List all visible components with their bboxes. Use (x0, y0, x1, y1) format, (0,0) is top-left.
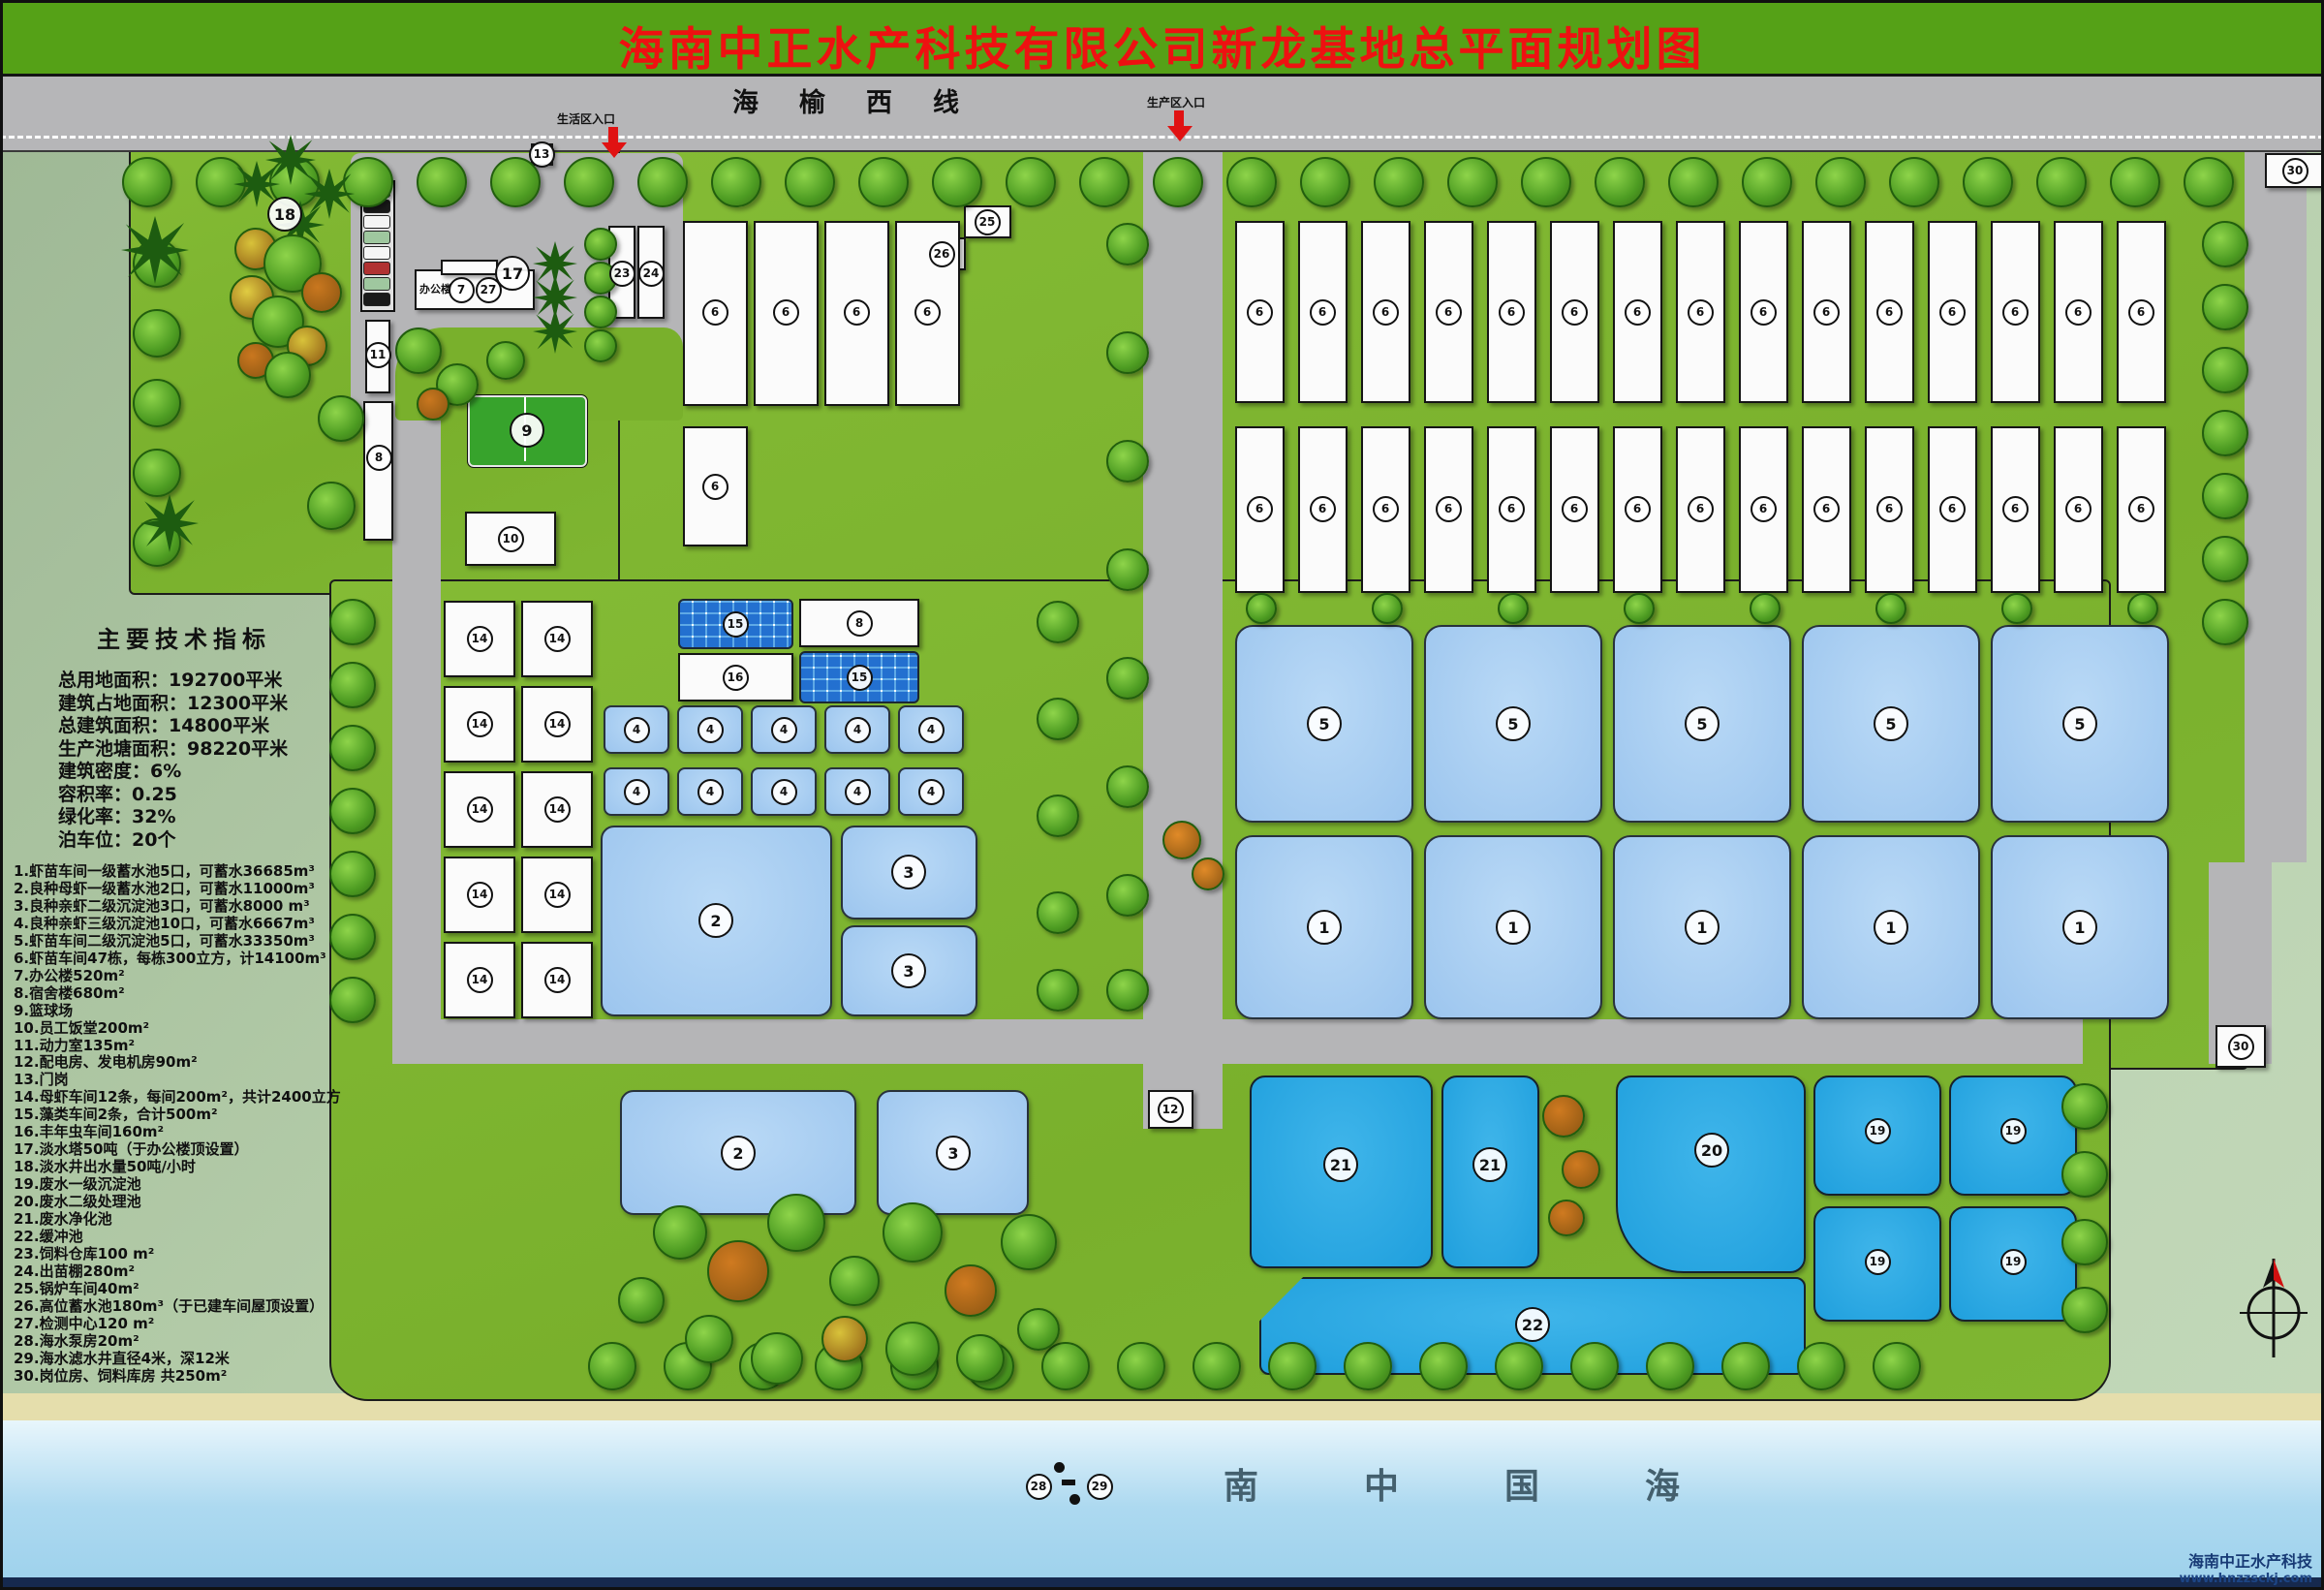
tree-icon (2202, 599, 2248, 645)
tree-icon (1193, 1342, 1241, 1390)
tree-icon (1079, 157, 1130, 207)
tree-icon (343, 157, 393, 207)
legend-item: 16.丰年虫车间160m² (14, 1124, 479, 1141)
tree-icon (1521, 157, 1571, 207)
map-marker-14: 14 (467, 711, 493, 737)
map-marker-15: 15 (723, 611, 749, 638)
tree-icon (264, 352, 311, 398)
tree-icon (2110, 157, 2160, 207)
sea-name-char: 海 (1645, 1458, 1680, 1509)
tree-icon (584, 296, 617, 328)
legend-item: 30.岗位房、饲料库房 共250m² (14, 1368, 479, 1386)
map-marker-6: 6 (914, 299, 941, 326)
legend-item: 8.宿舍楼680m² (14, 985, 479, 1003)
life-entrance-arrowhead (602, 142, 627, 158)
map-marker-13: 13 (529, 141, 555, 168)
empty-stall (363, 231, 390, 244)
tree-icon (2061, 1287, 2108, 1333)
watermark-company: 海南中正水产科技 (2180, 1548, 2312, 1572)
map-marker-25: 25 (975, 209, 1001, 235)
tree-icon (2127, 593, 2158, 624)
tree-icon (2036, 157, 2087, 207)
legend-item: 14.母虾车间12条，每间200m²，共计2400立方 (14, 1089, 479, 1107)
map-marker-6: 6 (1310, 299, 1336, 326)
legend-item: 24.出苗棚280m² (14, 1263, 479, 1281)
production-road (1143, 145, 1223, 1129)
legend-item: 21.废水净化池 (14, 1211, 479, 1229)
map-marker-19: 19 (2000, 1118, 2027, 1144)
map-marker-28: 28 (1026, 1474, 1052, 1500)
tree-icon (711, 157, 761, 207)
highway (0, 74, 2324, 152)
tree-icon (858, 157, 909, 207)
map-marker-6: 6 (1939, 496, 1966, 522)
legend-item: 19.废水一级沉淀池 (14, 1176, 479, 1194)
tree-icon (2202, 536, 2248, 582)
tree-icon (1668, 157, 1719, 207)
pump-bar-icon (1062, 1480, 1075, 1485)
tree-icon (829, 1256, 880, 1306)
map-marker-6: 6 (1247, 496, 1273, 522)
map-marker-14: 14 (544, 967, 571, 993)
map-marker-6: 6 (2065, 496, 2092, 522)
tree-icon (588, 1342, 636, 1390)
footer-bar (0, 1577, 2324, 1590)
page-title: 海南中正水产科技有限公司新龙基地总平面规划图 (0, 12, 2324, 78)
watermark-url: www.hnzzsckj.com (2180, 1572, 2312, 1586)
legend-item: 22.缓冲池 (14, 1229, 479, 1246)
tree-icon (1300, 157, 1350, 207)
legend-item: 10.员工饭堂200m² (14, 1020, 479, 1038)
tree-icon (1037, 601, 1079, 643)
sea-name-char: 南 (1224, 1458, 1258, 1509)
map-marker-3: 3 (891, 855, 926, 889)
map-marker-6: 6 (1939, 299, 1966, 326)
map-marker-6: 6 (1625, 496, 1651, 522)
legend-item: 4.良种亲虾三级沉淀池10口，可蓄水6667m³ (14, 916, 479, 933)
tree-icon (1106, 969, 1149, 1012)
indicator-line: 建筑密度：6% (58, 761, 378, 784)
map-marker-6: 6 (2128, 299, 2154, 326)
map-marker-6: 6 (1751, 299, 1777, 326)
indicator-line: 容积率：0.25 (58, 784, 378, 807)
tree-icon (1742, 157, 1792, 207)
legend-item: 28.海水泵房20m² (14, 1333, 479, 1351)
tree-icon (1192, 857, 1224, 890)
legend-item: 6.虾苗车间47栋，每栋300立方，计14100m³ (14, 951, 479, 968)
legend-item: 1.虾苗车间一级蓄水池5口，可蓄水36685m³ (14, 863, 479, 881)
map-marker-6: 6 (1310, 496, 1336, 522)
life-entrance-arrow (608, 127, 618, 142)
map-marker-1: 1 (1685, 910, 1720, 945)
map-marker-4: 4 (918, 779, 945, 805)
map-marker-14: 14 (467, 882, 493, 908)
legend-item: 23.饲料仓库100 m² (14, 1246, 479, 1263)
legend-item: 13.门岗 (14, 1072, 479, 1089)
legend-item: 17.淡水塔50吨（于办公楼顶设置） (14, 1141, 479, 1159)
prod-entrance-label: 生产区入口 (1147, 94, 1205, 110)
tree-icon (785, 157, 835, 207)
map-marker-6: 6 (1562, 299, 1588, 326)
tree-icon (1873, 1342, 1921, 1390)
tree-icon (653, 1205, 707, 1260)
tree-icon (307, 482, 356, 530)
map-marker-17: 17 (495, 256, 530, 291)
map-marker-6: 6 (1247, 299, 1273, 326)
map-marker-14: 14 (467, 626, 493, 652)
legend-item: 5.虾苗车间二级沉淀池5口，可蓄水33350m³ (14, 933, 479, 951)
prod-entrance-arrowhead (1167, 126, 1193, 141)
map-marker-1: 1 (1307, 910, 1342, 945)
legend-list: 1.虾苗车间一级蓄水池5口，可蓄水36685m³2.良种母虾一级蓄水池2口，可蓄… (14, 863, 479, 1386)
tree-icon (1646, 1342, 1694, 1390)
tree-icon (883, 1202, 943, 1263)
tree-icon (1117, 1342, 1165, 1390)
tree-icon (1963, 157, 2013, 207)
tree-icon (1001, 1214, 1057, 1270)
tree-icon (821, 1316, 868, 1362)
tree-icon (1374, 157, 1424, 207)
tree-icon (767, 1194, 825, 1252)
life-entrance-label: 生活区入口 (557, 110, 615, 127)
tree-icon (1037, 795, 1079, 837)
map-marker-30: 30 (2228, 1034, 2254, 1060)
legend-item: 26.高位蓄水池180m³（于已建车间屋顶设置） (14, 1298, 479, 1316)
tree-icon (637, 157, 688, 207)
map-marker-14: 14 (544, 796, 571, 823)
map-marker-5: 5 (1496, 706, 1531, 741)
map-marker-14: 14 (544, 626, 571, 652)
map-marker-3: 3 (891, 953, 926, 988)
map-marker-6: 6 (2065, 299, 2092, 326)
highway-label: 海榆西线 (732, 81, 1000, 119)
legend-item: 11.动力室135m² (14, 1038, 479, 1055)
tree-icon (2202, 221, 2248, 267)
south-road (392, 1019, 2083, 1064)
tree-icon (1447, 157, 1498, 207)
map-marker-7: 7 (449, 277, 475, 303)
office-roof-bump (441, 260, 498, 275)
tree-icon (2184, 157, 2234, 207)
tree-icon (1570, 1342, 1619, 1390)
map-marker-6: 6 (2002, 299, 2029, 326)
tree-icon (1721, 1342, 1770, 1390)
legend-item: 25.锅炉车间40m² (14, 1281, 479, 1298)
tree-icon (486, 341, 525, 380)
highway-centerline (0, 136, 2324, 139)
map-marker-6: 6 (2128, 496, 2154, 522)
map-marker-6: 6 (1436, 299, 1462, 326)
map-marker-4: 4 (771, 779, 797, 805)
tree-icon (318, 395, 364, 442)
legend-item: 12.配电房、发电机房90m² (14, 1054, 479, 1072)
tree-icon (1106, 657, 1149, 700)
tree-icon (2061, 1083, 2108, 1130)
tree-icon (751, 1332, 803, 1385)
map-marker-6: 6 (844, 299, 870, 326)
tree-icon (564, 157, 614, 207)
tree-icon (133, 449, 181, 497)
map-marker-4: 4 (624, 717, 650, 743)
map-marker-6: 6 (2002, 496, 2029, 522)
map-marker-5: 5 (1307, 706, 1342, 741)
indicator-line: 总建筑面积：14800平米 (58, 715, 378, 738)
map-marker-2: 2 (698, 903, 733, 938)
indicator-line: 绿化率：32% (58, 806, 378, 829)
empty-stall (363, 277, 390, 291)
map-marker-1: 1 (1874, 910, 1908, 945)
map-marker-6: 6 (1813, 496, 1840, 522)
map-marker-19: 19 (1865, 1249, 1891, 1275)
map-marker-20: 20 (1694, 1133, 1729, 1168)
tree-icon (196, 157, 246, 207)
tree-icon (2202, 473, 2248, 519)
tree-icon (1595, 157, 1645, 207)
tree-icon (1226, 157, 1277, 207)
map-marker-12: 12 (1158, 1097, 1184, 1123)
map-marker-6: 6 (1499, 496, 1525, 522)
map-marker-6: 6 (1813, 299, 1840, 326)
tree-icon (2061, 1151, 2108, 1198)
tree-icon (1041, 1342, 1090, 1390)
indicator-line: 泊车位：20个 (58, 829, 378, 853)
legend-item: 7.办公楼520m² (14, 968, 479, 985)
map-marker-11: 11 (365, 342, 391, 368)
tree-icon (1562, 1150, 1600, 1189)
tree-icon (1017, 1308, 1060, 1351)
tree-icon (2001, 593, 2032, 624)
tree-icon (301, 272, 342, 313)
compass-icon (2228, 1255, 2320, 1361)
legend-item: 27.检测中心120 m² (14, 1316, 479, 1333)
map-marker-21: 21 (1323, 1147, 1358, 1182)
map-marker-6: 6 (1373, 299, 1399, 326)
map-marker-5: 5 (2062, 706, 2097, 741)
tree-icon (2202, 284, 2248, 330)
sea-name-char: 中 (1364, 1458, 1399, 1509)
tree-icon (1498, 593, 1529, 624)
tree-icon (1750, 593, 1781, 624)
tree-icon (1542, 1095, 1585, 1138)
tree-icon (417, 388, 449, 421)
map-marker-6: 6 (1751, 496, 1777, 522)
tree-icon (1815, 157, 1866, 207)
map-marker-8: 8 (847, 610, 873, 637)
map-marker-19: 19 (2000, 1249, 2027, 1275)
map-marker-2: 2 (721, 1136, 756, 1170)
tree-icon (1797, 1342, 1845, 1390)
tree-icon (2061, 1219, 2108, 1265)
map-marker-4: 4 (845, 779, 871, 805)
map-marker-4: 4 (771, 717, 797, 743)
map-marker-5: 5 (1874, 706, 1908, 741)
map-marker-6: 6 (1436, 496, 1462, 522)
tree-icon (1037, 698, 1079, 740)
tree-icon (1153, 157, 1203, 207)
sea-name-char: 国 (1504, 1458, 1539, 1509)
legend-item: 9.篮球场 (14, 1003, 479, 1020)
tree-icon (1875, 593, 1906, 624)
map-marker-4: 4 (697, 779, 724, 805)
map-marker-8: 8 (366, 445, 392, 471)
east-road (2245, 145, 2307, 862)
indicator-line: 生产池塘面积：98220平米 (58, 738, 378, 762)
map-marker-4: 4 (697, 717, 724, 743)
map-marker-23: 23 (609, 261, 635, 287)
map-marker-21: 21 (1472, 1147, 1507, 1182)
map-marker-4: 4 (918, 717, 945, 743)
technical-indicators: 主要技术指标 总用地面积：192700平米建筑占地面积：12300平米总建筑面积… (58, 620, 378, 852)
sea (0, 1420, 2324, 1577)
tree-icon (1372, 593, 1403, 624)
tree-icon (618, 1277, 665, 1324)
map-marker-6: 6 (1876, 299, 1903, 326)
map-marker-6: 6 (773, 299, 799, 326)
map-marker-4: 4 (845, 717, 871, 743)
map-marker-6: 6 (1688, 299, 1714, 326)
legend-item: 15.藻类车间2条，合计500m² (14, 1107, 479, 1124)
tree-icon (1006, 157, 1056, 207)
tree-icon (1106, 874, 1149, 917)
tree-icon (1889, 157, 1939, 207)
map-marker-4: 4 (624, 779, 650, 805)
treatment-pond (1616, 1076, 1806, 1273)
tree-icon (707, 1240, 769, 1302)
office-building-label: 办公楼 (419, 281, 451, 296)
map-marker-14: 14 (544, 882, 571, 908)
legend-item: 3.良种亲虾二级沉淀池3口，可蓄水8000 m³ (14, 898, 479, 916)
map-marker-6: 6 (1562, 496, 1588, 522)
parked-car (363, 262, 390, 275)
tree-icon (1268, 1342, 1317, 1390)
seawater-well-icon (1069, 1494, 1080, 1505)
tree-icon (885, 1322, 940, 1376)
dormitory (363, 401, 393, 541)
parked-car (363, 246, 390, 260)
tree-icon (1037, 969, 1079, 1012)
map-marker-6: 6 (702, 474, 728, 500)
tree-icon (1037, 891, 1079, 934)
map-marker-26: 26 (929, 241, 955, 267)
tree-icon (584, 228, 617, 261)
tree-icon (1246, 593, 1277, 624)
legend-item: 29.海水滤水井直径4米，深12米 (14, 1351, 479, 1368)
watermark: 海南中正水产科技 www.hnzzsckj.com (2180, 1548, 2312, 1586)
tree-icon (1495, 1342, 1543, 1390)
map-marker-14: 14 (467, 967, 493, 993)
tree-icon (1624, 593, 1655, 624)
map-marker-6: 6 (1625, 299, 1651, 326)
tree-icon (133, 379, 181, 427)
tree-icon (1419, 1342, 1468, 1390)
map-marker-15: 15 (847, 665, 873, 691)
site-plan-canvas: 海南中正水产科技有限公司新龙基地总平面规划图 海榆西线 生活区入口 生产区入口 … (0, 0, 2324, 1590)
map-marker-9: 9 (510, 413, 544, 448)
map-marker-10: 10 (498, 526, 524, 552)
tree-icon (1106, 548, 1149, 591)
seawater-pump-icon (1054, 1462, 1065, 1473)
tree-icon (122, 157, 172, 207)
map-marker-18: 18 (267, 197, 302, 232)
tree-icon (932, 157, 982, 207)
tree-icon (1106, 765, 1149, 808)
map-marker-22: 22 (1515, 1307, 1550, 1342)
map-marker-16: 16 (723, 665, 749, 691)
map-marker-1: 1 (1496, 910, 1531, 945)
prod-entrance-arrow (1174, 110, 1184, 126)
legend-item: 2.良种母虾一级蓄水池2口，可蓄水11000m³ (14, 881, 479, 898)
tree-icon (584, 329, 617, 362)
map-marker-6: 6 (1373, 496, 1399, 522)
tree-icon (395, 327, 442, 374)
tree-icon (1106, 223, 1149, 265)
tree-icon (1162, 821, 1201, 859)
tree-icon (945, 1264, 997, 1317)
legend-item: 18.淡水井出水量50吨/小时 (14, 1159, 479, 1176)
map-marker-19: 19 (1865, 1118, 1891, 1144)
map-marker-6: 6 (1499, 299, 1525, 326)
map-marker-6: 6 (1688, 496, 1714, 522)
map-marker-14: 14 (467, 796, 493, 823)
indicators-title: 主要技术指标 (58, 620, 310, 654)
map-marker-14: 14 (544, 711, 571, 737)
tree-icon (2202, 410, 2248, 456)
map-marker-5: 5 (1685, 706, 1720, 741)
parked-car (363, 215, 390, 229)
map-marker-30: 30 (2282, 158, 2309, 184)
tree-icon (956, 1334, 1005, 1383)
tree-icon (685, 1315, 733, 1363)
map-marker-6: 6 (1876, 496, 1903, 522)
indicator-line: 建筑占地面积：12300平米 (58, 693, 378, 716)
tree-icon (1106, 331, 1149, 374)
tree-icon (133, 309, 181, 358)
tree-icon (1106, 440, 1149, 483)
map-marker-24: 24 (638, 261, 665, 287)
tree-icon (1344, 1342, 1392, 1390)
map-marker-6: 6 (702, 299, 728, 326)
map-marker-29: 29 (1087, 1474, 1113, 1500)
parked-car (363, 293, 390, 306)
tree-icon (417, 157, 467, 207)
tree-icon (1548, 1200, 1585, 1236)
indicator-line: 总用地面积：192700平米 (58, 670, 378, 693)
tree-icon (2202, 347, 2248, 393)
legend-item: 20.废水二级处理池 (14, 1194, 479, 1211)
map-marker-3: 3 (936, 1136, 971, 1170)
map-marker-1: 1 (2062, 910, 2097, 945)
